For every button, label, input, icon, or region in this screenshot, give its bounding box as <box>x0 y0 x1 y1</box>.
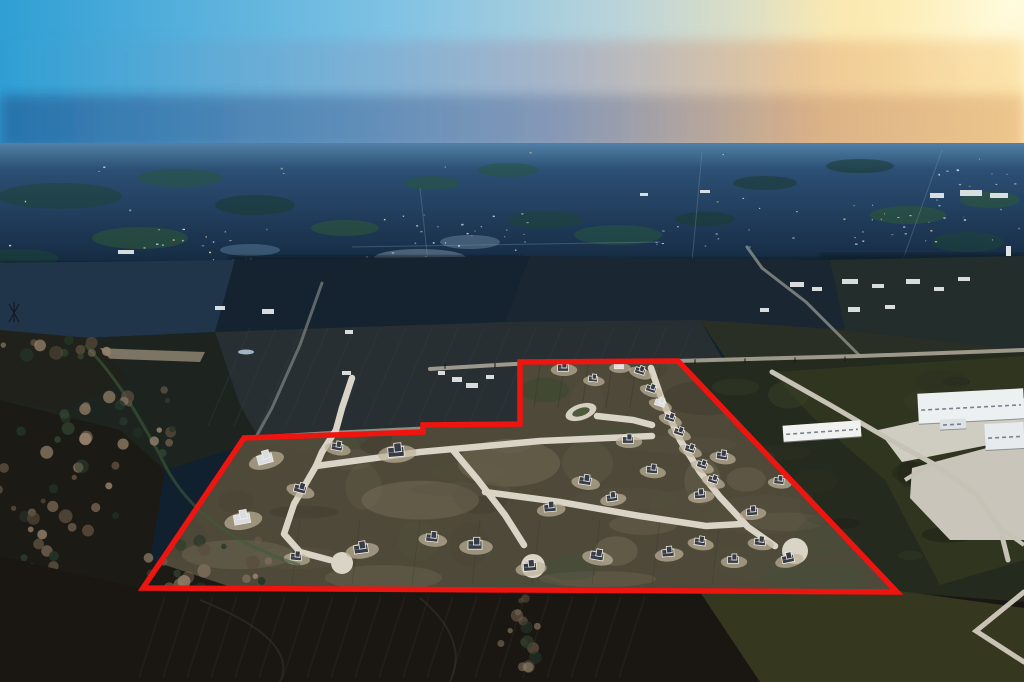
distant-light <box>445 166 446 167</box>
distant-light <box>156 243 158 245</box>
farm-building <box>958 277 970 281</box>
distant-light <box>903 226 905 228</box>
aerial-photo <box>0 0 1024 682</box>
distant-light <box>524 241 525 242</box>
farm-building <box>930 193 944 198</box>
distant-light <box>963 216 964 217</box>
farm-building <box>118 250 134 254</box>
distant-field <box>92 227 188 249</box>
distant-light <box>656 242 658 243</box>
distant-light <box>213 259 214 260</box>
distant-light <box>748 229 749 230</box>
distant-light <box>662 243 664 244</box>
distant-field <box>870 206 946 224</box>
tree <box>41 498 46 503</box>
tree <box>254 536 261 543</box>
tree <box>79 403 91 415</box>
tree <box>511 609 523 621</box>
distant-light <box>716 201 718 202</box>
tree <box>27 512 40 525</box>
distant-light <box>162 244 164 246</box>
distant-light <box>530 152 532 154</box>
tree <box>40 446 53 459</box>
distant-light <box>225 231 226 232</box>
farm-building <box>640 193 648 196</box>
tree <box>507 628 512 633</box>
tree <box>91 503 100 512</box>
tree <box>246 556 260 570</box>
distant-light <box>897 217 899 218</box>
distant-field <box>138 169 222 187</box>
tree <box>79 433 91 445</box>
distant-light <box>759 208 760 209</box>
farm-building <box>842 279 858 284</box>
tree <box>265 557 273 565</box>
tree <box>197 564 210 577</box>
distant-field <box>826 159 894 173</box>
distant-light <box>936 199 937 200</box>
distant-light <box>392 252 394 253</box>
tree <box>47 501 58 512</box>
distant-light <box>796 211 797 212</box>
distant-light <box>213 241 214 242</box>
distant-light <box>403 216 404 217</box>
tree <box>160 386 167 393</box>
distant-light <box>420 231 422 232</box>
tree <box>169 426 176 433</box>
distant-field <box>478 163 538 177</box>
distant-light <box>266 229 267 230</box>
distant-light <box>445 242 446 243</box>
distant-light <box>481 226 482 227</box>
farm-building <box>960 190 982 196</box>
tree <box>49 346 63 360</box>
distant-light <box>935 241 937 242</box>
campus-building <box>917 388 1024 425</box>
distant-light <box>718 238 720 239</box>
tree <box>119 417 127 425</box>
distant-light <box>423 215 425 216</box>
distant-field <box>404 176 460 190</box>
distant-field <box>0 183 122 209</box>
tree <box>34 339 46 351</box>
horizon-haze <box>0 95 1024 150</box>
farm-building <box>486 375 494 379</box>
tree <box>103 391 115 403</box>
tree <box>82 525 94 537</box>
distant-light <box>862 241 864 242</box>
water-tower <box>1006 246 1011 256</box>
farm-building <box>812 287 822 291</box>
tree <box>157 427 162 432</box>
distant-light <box>723 154 724 155</box>
tree <box>112 512 119 519</box>
distant-light <box>283 173 285 174</box>
tree <box>242 574 250 582</box>
tree <box>88 349 96 357</box>
tree <box>521 635 534 648</box>
distant-light <box>843 218 845 220</box>
distant-light <box>206 236 207 237</box>
farm-building <box>848 307 860 312</box>
tree <box>150 436 159 445</box>
distant-light <box>943 217 945 219</box>
distant-light <box>523 234 525 235</box>
distant-light <box>872 205 873 206</box>
farm-building <box>872 284 884 288</box>
tree <box>59 509 73 523</box>
distant-light <box>103 166 105 168</box>
distant-light <box>526 222 528 223</box>
tree <box>115 400 125 410</box>
distant-light <box>938 174 940 176</box>
distant-light <box>98 171 100 172</box>
distant-light <box>144 247 146 249</box>
farm-building <box>466 383 478 388</box>
distant-light <box>991 173 992 174</box>
farm-building <box>342 371 351 375</box>
tree <box>521 594 530 603</box>
distant-field <box>311 220 379 236</box>
tree <box>165 439 173 447</box>
aerial-photo-canvas <box>0 0 1024 682</box>
tree <box>258 577 266 585</box>
distant-light <box>281 168 283 170</box>
tree <box>54 436 61 443</box>
farm-building <box>215 306 225 310</box>
farm-building <box>760 308 769 312</box>
distant-light <box>202 245 204 246</box>
tree <box>68 523 77 532</box>
distant-light <box>792 237 794 239</box>
tree <box>86 337 98 349</box>
farm-building <box>452 377 462 382</box>
distant-light <box>504 236 505 237</box>
distant-light <box>930 230 932 232</box>
campus-building <box>940 418 967 430</box>
tree <box>111 462 119 470</box>
tree <box>165 398 170 403</box>
tree <box>49 484 58 493</box>
tree <box>21 554 28 561</box>
tree <box>534 623 541 630</box>
tree <box>198 544 210 556</box>
distant-light <box>716 233 718 235</box>
distant-light <box>25 201 26 202</box>
distant-light <box>471 235 472 236</box>
distant-light <box>1014 183 1016 184</box>
farm-building <box>345 330 353 334</box>
tree <box>173 570 181 578</box>
field <box>215 256 530 332</box>
distant-field <box>507 211 583 229</box>
farm-building <box>906 279 920 284</box>
tree <box>529 651 541 663</box>
distant-light <box>905 233 907 235</box>
distant-light <box>677 226 679 227</box>
distant-light <box>129 209 131 211</box>
tree <box>221 544 227 550</box>
tree <box>62 422 75 435</box>
distant-light <box>964 219 966 220</box>
tree <box>75 459 89 473</box>
distant-light <box>467 233 469 235</box>
distant-light <box>938 205 940 206</box>
field <box>0 260 235 342</box>
distant-light <box>749 246 750 248</box>
tree <box>64 335 74 345</box>
tree <box>102 347 111 356</box>
distant-light <box>515 250 517 251</box>
distant-light <box>957 169 959 171</box>
distant-light <box>1018 228 1019 230</box>
distant-light <box>979 158 980 159</box>
tree <box>523 662 533 672</box>
distant-light <box>928 222 929 223</box>
farm-building <box>990 193 1008 198</box>
tree <box>72 475 77 480</box>
tree <box>253 574 258 579</box>
distant-light <box>891 234 894 235</box>
tree <box>497 640 504 647</box>
distant-light <box>1000 209 1001 210</box>
distant-light <box>209 252 211 254</box>
distant-light <box>437 226 439 227</box>
tree <box>49 551 59 561</box>
tree <box>20 348 33 361</box>
tree <box>159 449 167 457</box>
distant-light <box>872 219 873 221</box>
tree <box>37 530 47 540</box>
distant-land <box>0 143 1024 270</box>
distant-light <box>854 237 856 238</box>
farm-building <box>790 282 804 287</box>
distant-light <box>416 225 418 227</box>
distant-light <box>881 219 882 221</box>
distant-field <box>733 176 797 190</box>
distant-field <box>932 232 1004 252</box>
farm-building <box>700 190 710 193</box>
distant-light <box>182 240 184 241</box>
distant-light <box>183 229 185 230</box>
distant-light <box>992 239 993 240</box>
distant-light <box>909 215 911 216</box>
tree <box>1 342 6 347</box>
farm-building <box>438 371 445 375</box>
distant-light <box>969 186 971 187</box>
tree <box>118 439 129 450</box>
tree <box>520 621 532 633</box>
distant-light <box>925 240 926 241</box>
distant-light <box>855 243 857 244</box>
distant-light <box>433 242 435 244</box>
distant-light <box>521 213 523 215</box>
tree <box>28 527 34 533</box>
distant-light <box>506 229 507 231</box>
distant-light <box>862 231 863 233</box>
distant-light <box>461 224 464 226</box>
farm-building <box>885 305 895 309</box>
distant-light <box>742 198 744 199</box>
distant-light <box>946 171 949 172</box>
distant-field <box>675 212 735 226</box>
distant-light <box>853 205 855 206</box>
tree <box>105 482 112 489</box>
tree <box>133 428 143 438</box>
distant-light <box>384 219 386 220</box>
distant-light <box>493 216 495 217</box>
campus-building <box>984 422 1024 451</box>
tree <box>59 409 69 419</box>
farm-pond <box>238 350 254 355</box>
distant-light <box>173 239 175 240</box>
farm-building <box>262 309 274 314</box>
distant-light <box>9 245 11 247</box>
distant-light <box>1006 174 1007 175</box>
distant-light <box>884 213 885 215</box>
distant-light <box>414 242 416 244</box>
tree <box>16 426 25 435</box>
distant-light <box>158 229 160 230</box>
distant-light <box>705 246 707 247</box>
distant-light <box>458 245 460 247</box>
tree <box>78 353 84 359</box>
distant-light <box>229 240 231 241</box>
distant-field <box>215 195 295 215</box>
distant-light <box>959 184 961 185</box>
farm-building <box>934 287 944 291</box>
distant-light <box>474 231 476 232</box>
distant-light <box>656 244 658 245</box>
distant-light <box>996 184 998 185</box>
distant-light <box>662 231 665 232</box>
tree <box>144 553 154 563</box>
tree <box>11 506 16 511</box>
